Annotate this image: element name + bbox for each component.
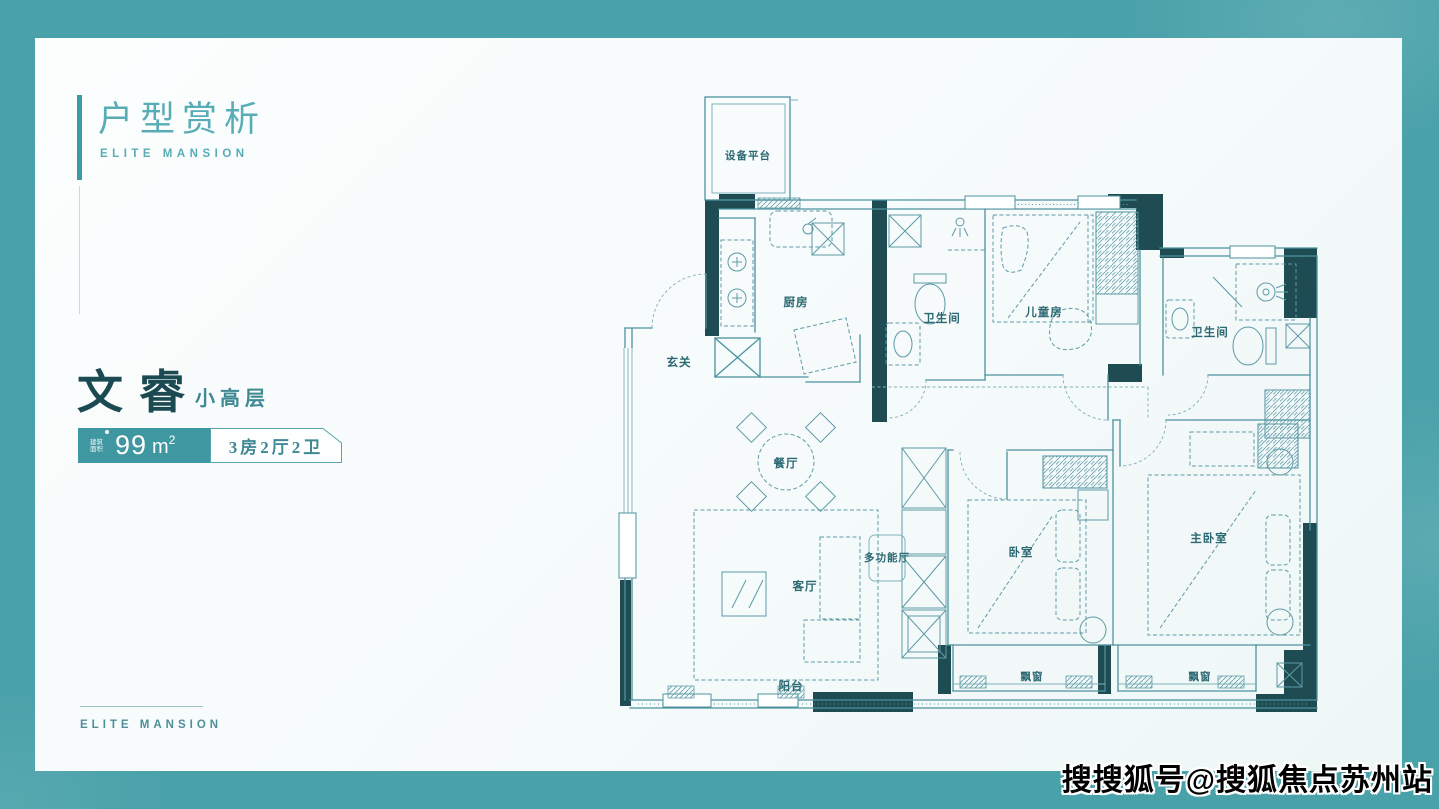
room-label: 阳台 <box>779 679 804 693</box>
room-label: 卫生间 <box>923 311 961 325</box>
title-accent-bar <box>77 95 82 180</box>
decorative-vertical-line <box>79 186 80 314</box>
area-dot-icon <box>105 430 109 434</box>
hallway-guides <box>872 387 1310 438</box>
room-label: 多功能厅 <box>864 551 910 564</box>
page-subtitle: ELITE MANSION <box>100 148 249 160</box>
room-label: 餐厅 <box>773 456 799 470</box>
room-label: 主卧室 <box>1190 531 1228 545</box>
area-tag-line2: 面积 <box>90 446 103 453</box>
room-label: 儿童房 <box>1024 305 1063 319</box>
footer-divider <box>80 706 203 707</box>
area-tag-line1: 建筑 <box>90 439 103 446</box>
area-exponent: 2 <box>169 433 176 447</box>
content-card: 户型赏析 ELITE MANSION 文睿 小高层 建筑 面积 99 m2 3房… <box>35 38 1402 771</box>
room-label: 卫生间 <box>1191 325 1229 339</box>
room-label: 设备平台 <box>725 149 771 162</box>
area-badge: 建筑 面积 99 m2 <box>78 428 210 463</box>
unit-grade: 小高层 <box>195 382 270 411</box>
room-label: 客厅 <box>792 579 818 593</box>
room-label: 飘窗 <box>1021 670 1044 683</box>
floorplan-svg: 设备平台 厨房 卫生间 儿童房 卫生间 玄关 餐厅 多功能厅 客厅 卧室 主卧室… <box>608 90 1332 716</box>
dark-walls <box>620 194 1317 712</box>
area-value: 99 <box>115 430 147 461</box>
layout-spec-text: 3房2厅2卫 <box>210 428 342 463</box>
room-label: 厨房 <box>784 295 809 309</box>
page-title: 户型赏析 <box>98 91 266 142</box>
room-label: 卧室 <box>1009 545 1034 559</box>
watermark: 搜搜狐号@搜狐焦点苏州站 <box>1062 755 1433 799</box>
footer-brand: ELITE MANSION <box>80 719 222 731</box>
layout-spec-box: 3房2厅2卫 <box>210 428 342 463</box>
equipment-platform <box>705 97 798 200</box>
unit-name: 文睿 <box>77 356 201 422</box>
area-tag-icon: 建筑 面积 <box>90 439 103 453</box>
area-unit: m2 <box>152 433 175 459</box>
unit-spec-row: 建筑 面积 99 m2 3房2厅2卫 <box>78 428 342 463</box>
room-label: 飘窗 <box>1189 670 1212 683</box>
room-label: 玄关 <box>667 355 692 369</box>
bay-windows <box>953 645 1302 691</box>
kitchen-area <box>719 211 856 374</box>
